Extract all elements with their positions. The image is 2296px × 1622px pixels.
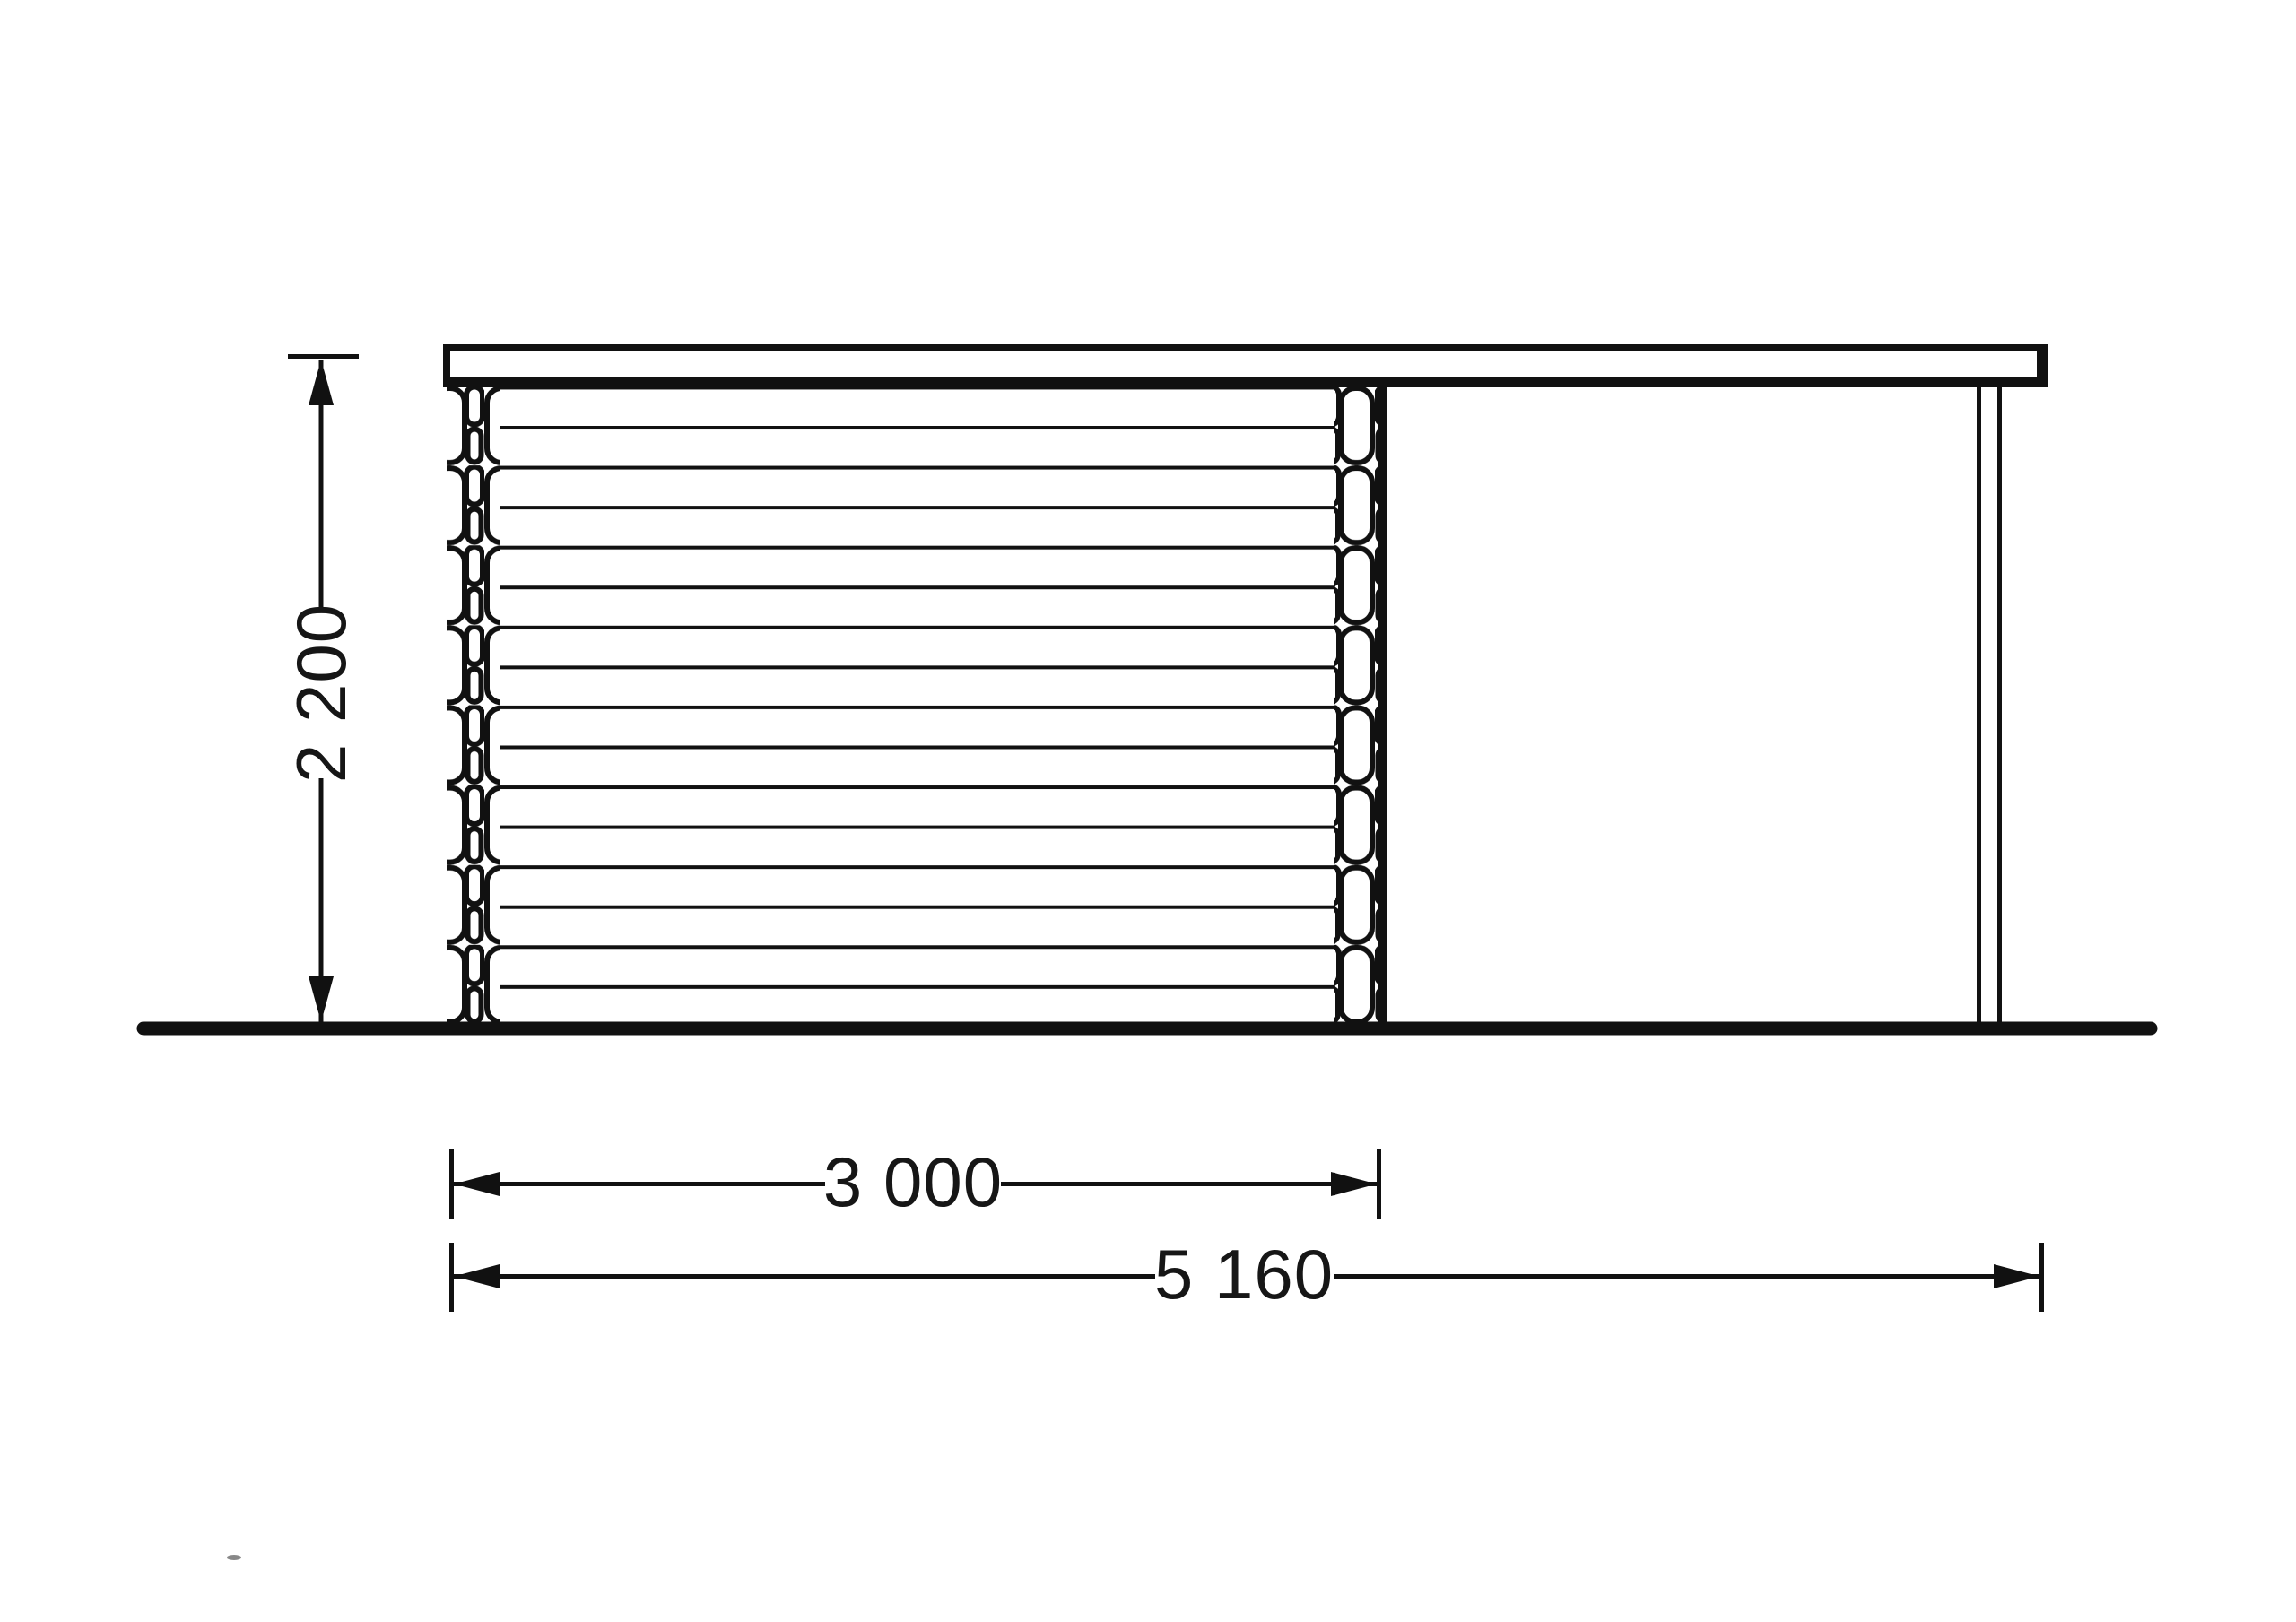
support-post [1979,386,2000,1025]
total-width-left-arrow [454,1264,500,1288]
total-width-right-arrow [1994,1264,2039,1288]
total-width-dimension-label: 5 160 [1154,1235,1334,1314]
height-dimension-down-arrow [309,976,334,1022]
elevation-drawing: 2 200 3 000 5 160 [0,0,2296,1622]
roof-slab [444,348,2048,386]
height-dimension-label: 2 200 [282,603,361,783]
cabin-width-left-arrow [454,1172,500,1196]
cabin-width-dimension-label: 3 000 [823,1142,1003,1221]
cabin-width-right-arrow [1331,1172,1377,1196]
print-artifact-speck [227,1555,241,1560]
log-wall-left-corner [447,385,500,1025]
height-dimension-up-arrow [309,360,334,405]
log-wall-courses [489,386,1338,1024]
